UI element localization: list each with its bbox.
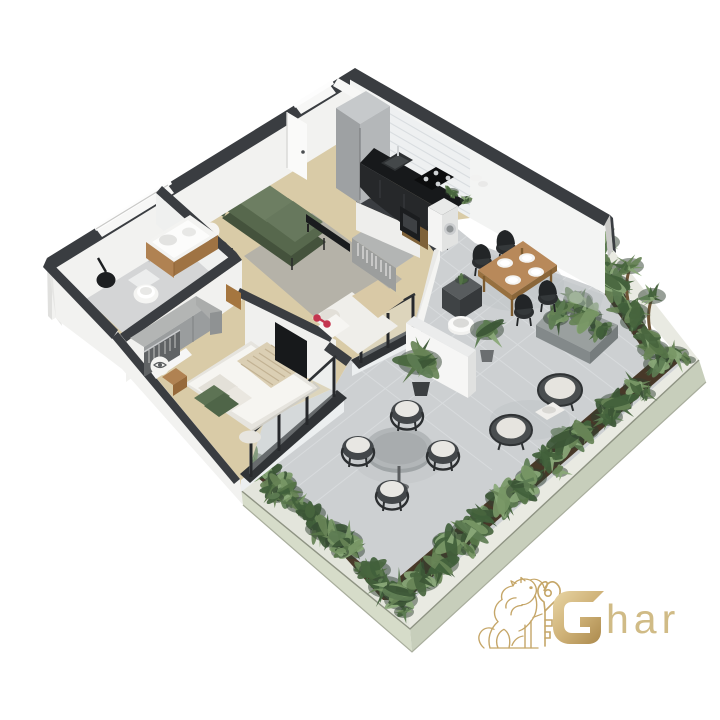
- svg-text:har: har: [606, 596, 680, 642]
